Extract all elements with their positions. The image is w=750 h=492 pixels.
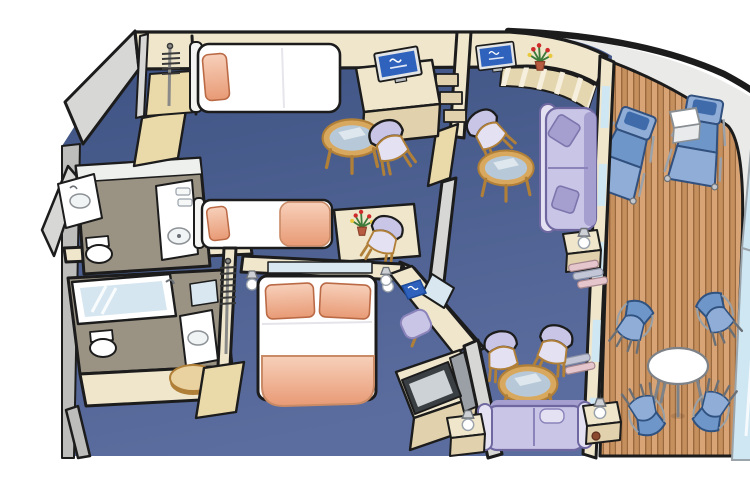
foot-blanket: [262, 356, 374, 406]
sofa-1: [540, 104, 596, 232]
table-lamp-3: [594, 399, 605, 419]
suite-interior: [42, 31, 621, 458]
shelf-step: [440, 92, 462, 104]
pillow: [202, 53, 230, 101]
wardrobe-floor: [146, 71, 196, 116]
table-lamp-1: [578, 229, 589, 249]
suite-floorplan: [40, 16, 750, 476]
twin-bed-1: [190, 42, 340, 112]
blanket: [280, 202, 330, 246]
sink-basin: [188, 331, 208, 345]
toilet: [90, 339, 116, 357]
twin-bed-2: [194, 198, 332, 248]
floorplan-canvas: [40, 16, 750, 476]
shelf-step: [444, 110, 466, 122]
vanity-lamp: [381, 268, 391, 286]
table-lamp-2: [462, 411, 473, 431]
pillow: [319, 283, 371, 320]
pillow: [265, 283, 315, 319]
shelf-step: [436, 74, 458, 86]
cushion: [540, 409, 564, 423]
mirror: [190, 280, 218, 306]
cabinet-knob: [592, 432, 600, 440]
pillow: [206, 206, 230, 241]
sink-basin: [70, 194, 90, 208]
hanger-rod: [226, 258, 228, 354]
headboard-mirror: [268, 262, 372, 273]
bathroom-door: [134, 110, 186, 166]
cube-table: [670, 108, 700, 143]
sofa-2: [478, 400, 592, 450]
towel: [176, 188, 190, 195]
master-door: [196, 362, 244, 418]
toilet: [86, 245, 112, 263]
queen-bed: [258, 276, 376, 406]
wall-lamp-left: [247, 271, 258, 290]
towel: [178, 199, 192, 206]
